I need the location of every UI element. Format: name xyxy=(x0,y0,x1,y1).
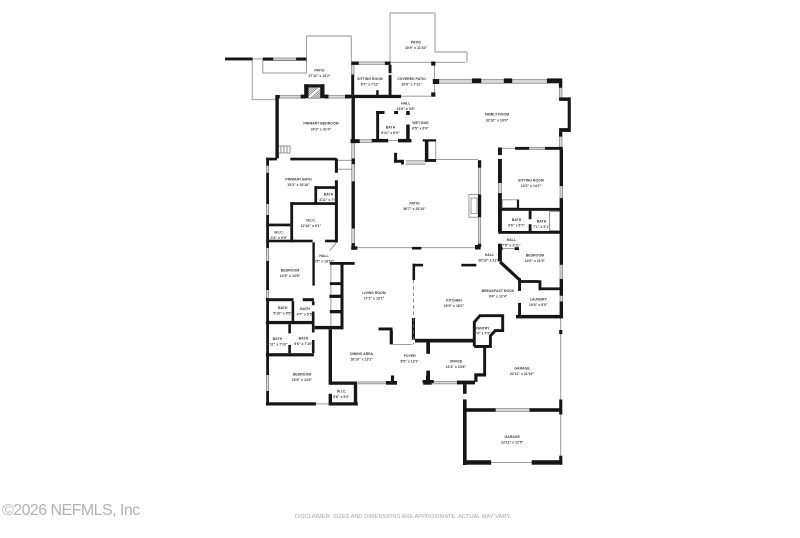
svg-text:FAMILY ROOM: FAMILY ROOM xyxy=(485,113,509,117)
svg-text:W.I.C.: W.I.C. xyxy=(337,390,347,394)
svg-text:WET BAR: WET BAR xyxy=(412,121,429,125)
svg-text:HALL: HALL xyxy=(507,238,517,242)
svg-text:SITTING ROOM: SITTING ROOM xyxy=(357,77,383,81)
svg-text:7'5" x 3'11": 7'5" x 3'11" xyxy=(502,243,521,247)
svg-text:BATH: BATH xyxy=(324,193,334,197)
svg-text:22'11" x 12'5": 22'11" x 12'5" xyxy=(501,441,524,445)
svg-text:4'11" x 7'10": 4'11" x 7'10" xyxy=(267,343,288,347)
svg-text:BATH: BATH xyxy=(512,218,522,222)
svg-text:4'7" x 5'5": 4'7" x 5'5" xyxy=(297,312,314,316)
svg-text:W.I.C.: W.I.C. xyxy=(274,231,284,235)
svg-text:HALL: HALL xyxy=(319,254,329,258)
svg-text:6'5" x 6'9": 6'5" x 6'9" xyxy=(412,127,429,131)
svg-text:5'6" x 7'10": 5'6" x 7'10" xyxy=(294,342,313,346)
svg-text:6'6" x 5'7": 6'6" x 5'7" xyxy=(508,223,525,227)
svg-text:BEDROOM: BEDROOM xyxy=(526,254,544,258)
svg-text:DINING AREA: DINING AREA xyxy=(350,352,373,356)
svg-text:SITTING ROOM: SITTING ROOM xyxy=(518,179,544,183)
svg-text:14'9" x 13'8": 14'9" x 13'8" xyxy=(280,274,301,278)
svg-text:12'10" x 9'1": 12'10" x 9'1" xyxy=(301,224,322,228)
svg-text:10'6" x 8'5": 10'6" x 8'5" xyxy=(529,303,548,307)
svg-text:PRIMARY BATH: PRIMARY BATH xyxy=(285,178,312,182)
svg-text:FOYER: FOYER xyxy=(404,354,417,358)
svg-text:7'1" x 5'1": 7'1" x 5'1" xyxy=(533,225,550,229)
svg-text:3'5" x 18'10": 3'5" x 18'10" xyxy=(314,259,335,263)
svg-text:BATH: BATH xyxy=(537,220,547,224)
svg-text:13'4" x 13'6": 13'4" x 13'6" xyxy=(446,365,467,369)
svg-text:BATH: BATH xyxy=(386,125,396,129)
svg-text:10'8" x 7'11": 10'8" x 7'11" xyxy=(401,83,422,87)
svg-text:5'8" x 5'0": 5'8" x 5'0" xyxy=(333,395,350,399)
svg-text:BEDROOM: BEDROOM xyxy=(281,269,299,273)
svg-text:14'0" x 14'2": 14'0" x 14'2" xyxy=(521,184,542,188)
svg-text:BATH: BATH xyxy=(278,306,288,310)
svg-text:BREAKFAST NOOK: BREAKFAST NOOK xyxy=(482,289,515,293)
svg-text:27'11" x 14'2": 27'11" x 14'2" xyxy=(308,74,331,78)
svg-text:GARAGE: GARAGE xyxy=(505,435,521,439)
svg-text:LIVING ROOM: LIVING ROOM xyxy=(362,291,386,295)
svg-text:HALL: HALL xyxy=(401,101,411,105)
svg-text:16'10" x 13'1": 16'10" x 13'1" xyxy=(350,358,373,362)
svg-text:PATIO: PATIO xyxy=(314,69,324,73)
svg-text:17'1" x 19'1": 17'1" x 19'1" xyxy=(364,296,385,300)
svg-text:36'7" x 23'10": 36'7" x 23'10" xyxy=(403,207,426,211)
svg-text:13'6" x 3'8": 13'6" x 3'8" xyxy=(396,107,415,111)
svg-text:PRIMARY BEDROOM: PRIMARY BEDROOM xyxy=(303,122,338,126)
svg-text:PATIO: PATIO xyxy=(411,41,421,45)
svg-text:6'11" x 6'9": 6'11" x 6'9" xyxy=(381,131,400,135)
svg-text:OFFICE: OFFICE xyxy=(449,360,462,364)
svg-text:15'8" x 14'6": 15'8" x 14'6" xyxy=(292,378,313,382)
svg-text:PANTRY: PANTRY xyxy=(476,326,491,330)
svg-text:3'4" x 9'9": 3'4" x 9'9" xyxy=(271,236,288,240)
svg-text:22'11" x 21'10": 22'11" x 21'10" xyxy=(510,372,535,376)
svg-text:15'9" x 18'2": 15'9" x 18'2" xyxy=(444,304,465,308)
svg-text:LAUNDRY: LAUNDRY xyxy=(530,298,548,302)
svg-text:DISCLAIMER: SIZES AND DIMENSIO: DISCLAIMER: SIZES AND DIMENSIONS ARE APP… xyxy=(295,514,511,520)
svg-text:KITCHEN: KITCHEN xyxy=(446,299,462,303)
svg-text:BEDROOM: BEDROOM xyxy=(293,373,311,377)
svg-text:9'4" x 7'5": 9'4" x 7'5" xyxy=(474,331,491,335)
svg-text:BATH: BATH xyxy=(273,337,283,341)
svg-text:8'5" x 13'1": 8'5" x 13'1" xyxy=(400,360,419,364)
svg-text:PATIO: PATIO xyxy=(409,202,419,206)
svg-text:GARAGE: GARAGE xyxy=(514,366,530,370)
svg-text:9'4" x 12'4": 9'4" x 12'4" xyxy=(489,295,508,299)
svg-text:4'11" x 7'5": 4'11" x 7'5" xyxy=(319,198,338,202)
svg-text:W.I.C.: W.I.C. xyxy=(306,219,316,223)
svg-text:18'9" x 11'10": 18'9" x 11'10" xyxy=(405,46,428,50)
svg-text:8'7" x 7'11": 8'7" x 7'11" xyxy=(361,83,380,87)
svg-text:24'2" x 31'4": 24'2" x 31'4" xyxy=(311,128,332,132)
svg-text:5'10" x 5'5": 5'10" x 5'5" xyxy=(273,312,292,316)
svg-text:15'5" x 15'10": 15'5" x 15'10" xyxy=(287,183,310,187)
svg-text:COVERED PATIO: COVERED PATIO xyxy=(397,77,426,81)
svg-text:20'10" x 21'5": 20'10" x 21'5" xyxy=(478,258,501,262)
svg-text:BATH: BATH xyxy=(300,307,310,311)
svg-text:HALL: HALL xyxy=(485,253,495,257)
svg-text:14'0" x 11'9": 14'0" x 11'9" xyxy=(525,259,546,263)
svg-text:32'10" x 19'0": 32'10" x 19'0" xyxy=(486,119,509,123)
svg-text:BATH: BATH xyxy=(299,337,309,341)
svg-text:©2026 NEFMLS, Inc: ©2026 NEFMLS, Inc xyxy=(2,502,140,519)
